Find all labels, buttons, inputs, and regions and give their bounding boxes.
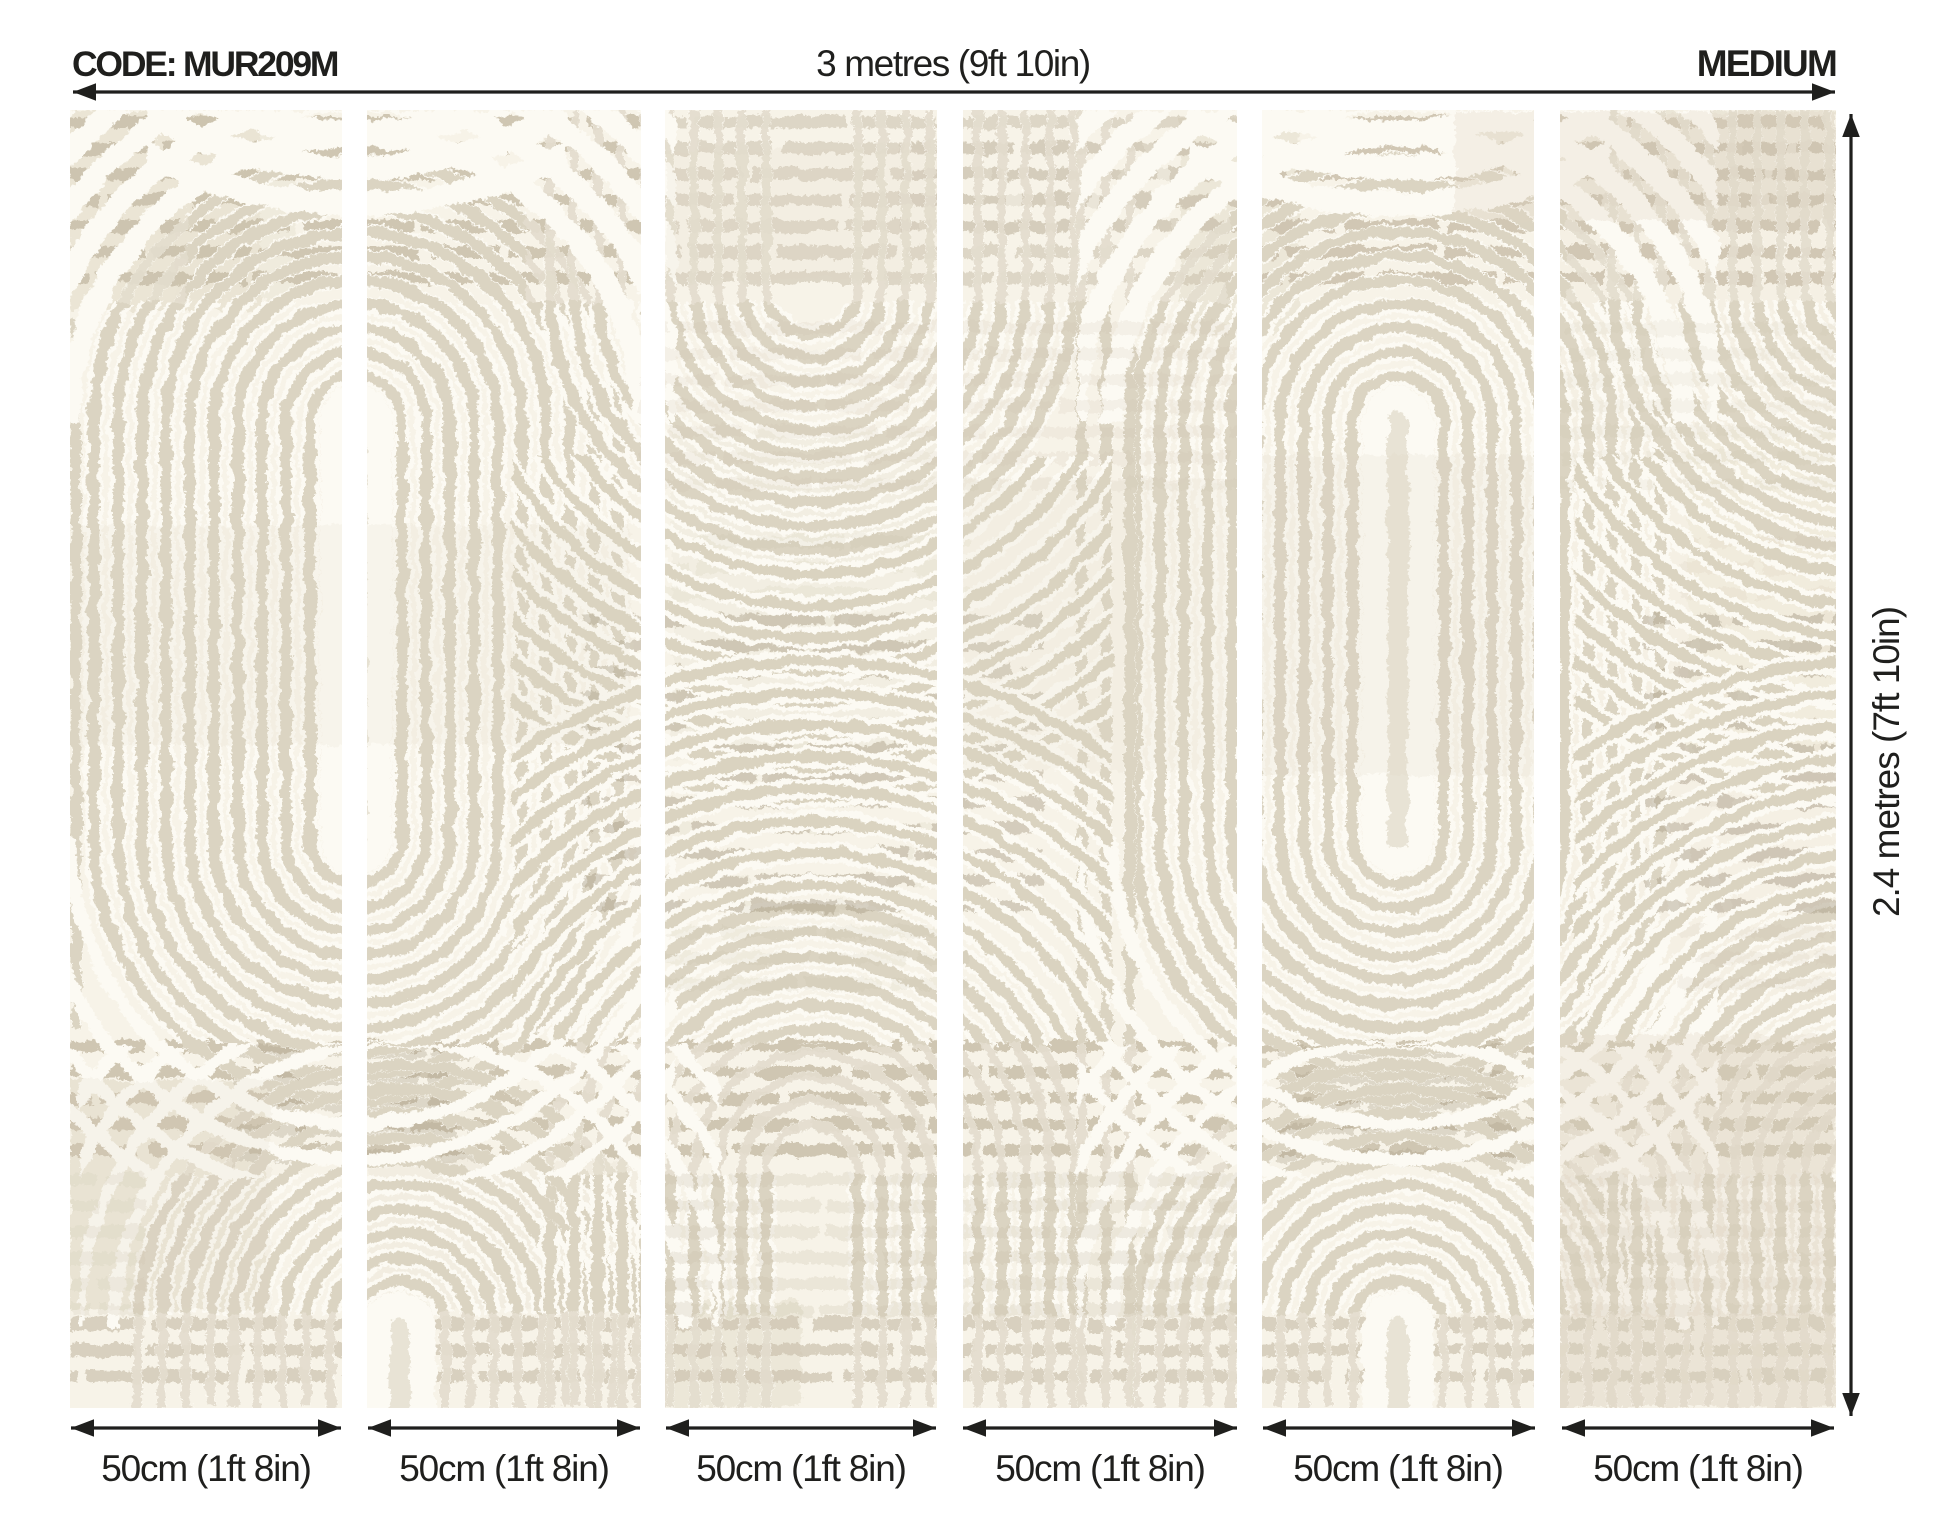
svg-text:50cm (1ft 8in): 50cm (1ft 8in)	[101, 1448, 310, 1489]
svg-text:50cm (1ft 8in): 50cm (1ft 8in)	[1593, 1448, 1802, 1489]
svg-text:50cm (1ft 8in): 50cm (1ft 8in)	[1293, 1448, 1502, 1489]
svg-text:50cm (1ft 8in): 50cm (1ft 8in)	[399, 1448, 608, 1489]
svg-text:50cm (1ft 8in): 50cm (1ft 8in)	[696, 1448, 905, 1489]
svg-text:3 metres (9ft 10in): 3 metres (9ft 10in)	[816, 43, 1090, 84]
svg-text:MEDIUM: MEDIUM	[1697, 43, 1836, 84]
svg-text:50cm (1ft 8in): 50cm (1ft 8in)	[995, 1448, 1204, 1489]
svg-text:CODE: MUR209M: CODE: MUR209M	[72, 44, 338, 84]
svg-text:2.4 metres (7ft 10in): 2.4 metres (7ft 10in)	[1866, 607, 1907, 917]
